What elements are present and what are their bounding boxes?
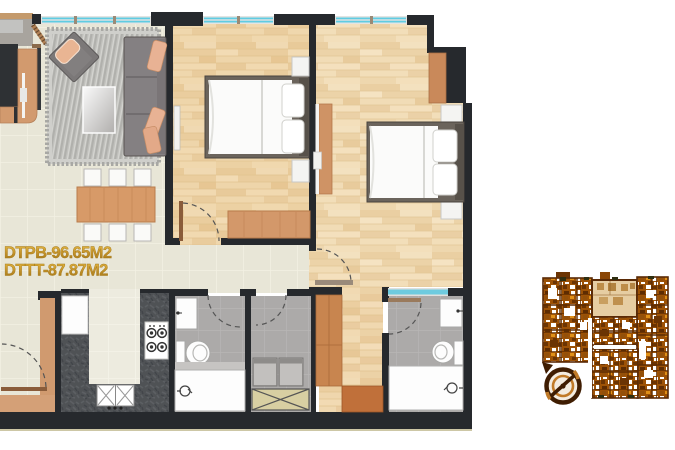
svg-text:DTTT-87.87M2: DTTT-87.87M2 (4, 262, 108, 280)
svg-text:DTPB-96.65M2: DTPB-96.65M2 (4, 244, 112, 262)
